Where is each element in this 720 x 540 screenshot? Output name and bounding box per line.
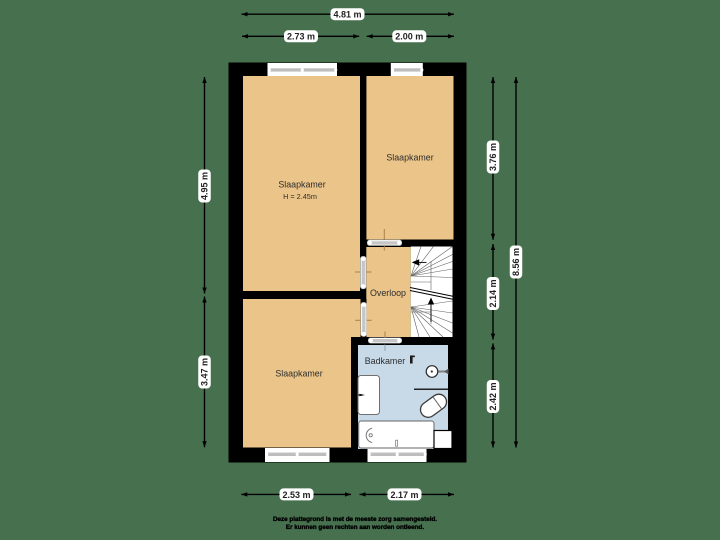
svg-text:4.95 m: 4.95 m bbox=[200, 172, 210, 200]
svg-text:Deze plattegrond is met de mee: Deze plattegrond is met de meeste zorg s… bbox=[273, 516, 437, 523]
svg-text:Slaapkamer: Slaapkamer bbox=[278, 180, 325, 190]
svg-text:Badkamer: Badkamer bbox=[365, 356, 405, 366]
svg-text:2.42 m: 2.42 m bbox=[488, 382, 498, 410]
svg-text:Slaapkamer: Slaapkamer bbox=[386, 153, 433, 163]
svg-text:8.56 m: 8.56 m bbox=[511, 248, 521, 276]
svg-text:2.53 m: 2.53 m bbox=[282, 490, 310, 500]
svg-text:2.17 m: 2.17 m bbox=[390, 490, 418, 500]
svg-text:3.76 m: 3.76 m bbox=[488, 143, 498, 171]
svg-text:3.47 m: 3.47 m bbox=[200, 358, 210, 386]
svg-text:Overloop: Overloop bbox=[370, 288, 406, 298]
svg-text:2.14 m: 2.14 m bbox=[488, 279, 498, 307]
svg-text:2.73 m: 2.73 m bbox=[287, 32, 315, 42]
svg-text:2.00 m: 2.00 m bbox=[395, 32, 423, 42]
svg-text:4.81 m: 4.81 m bbox=[333, 10, 361, 20]
svg-text:H = 2.45m: H = 2.45m bbox=[283, 192, 317, 201]
svg-text:Er kunnen geen rechten aan wor: Er kunnen geen rechten aan worden ontlee… bbox=[286, 524, 424, 531]
svg-text:Slaapkamer: Slaapkamer bbox=[275, 369, 322, 379]
